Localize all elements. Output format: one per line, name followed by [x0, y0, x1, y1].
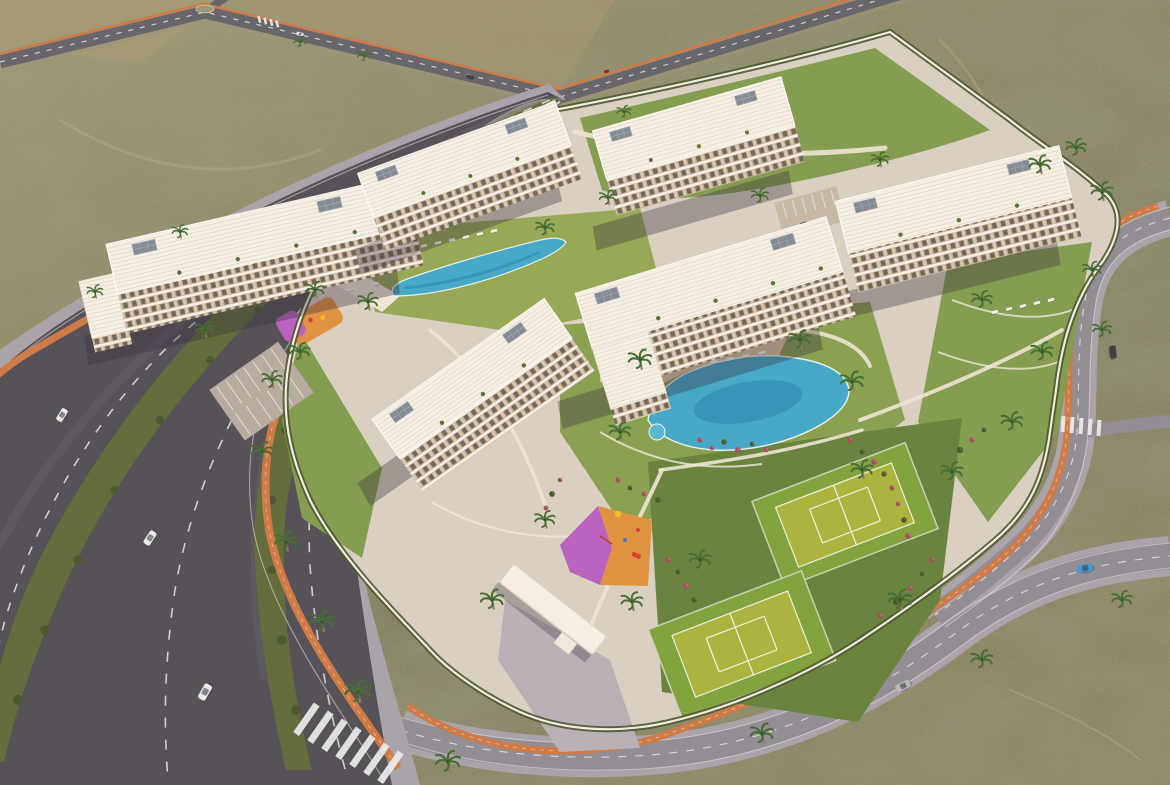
sunset-light-overlay: [0, 0, 1170, 785]
aerial-render-stage: [0, 0, 1170, 785]
aerial-render: [0, 0, 1170, 785]
